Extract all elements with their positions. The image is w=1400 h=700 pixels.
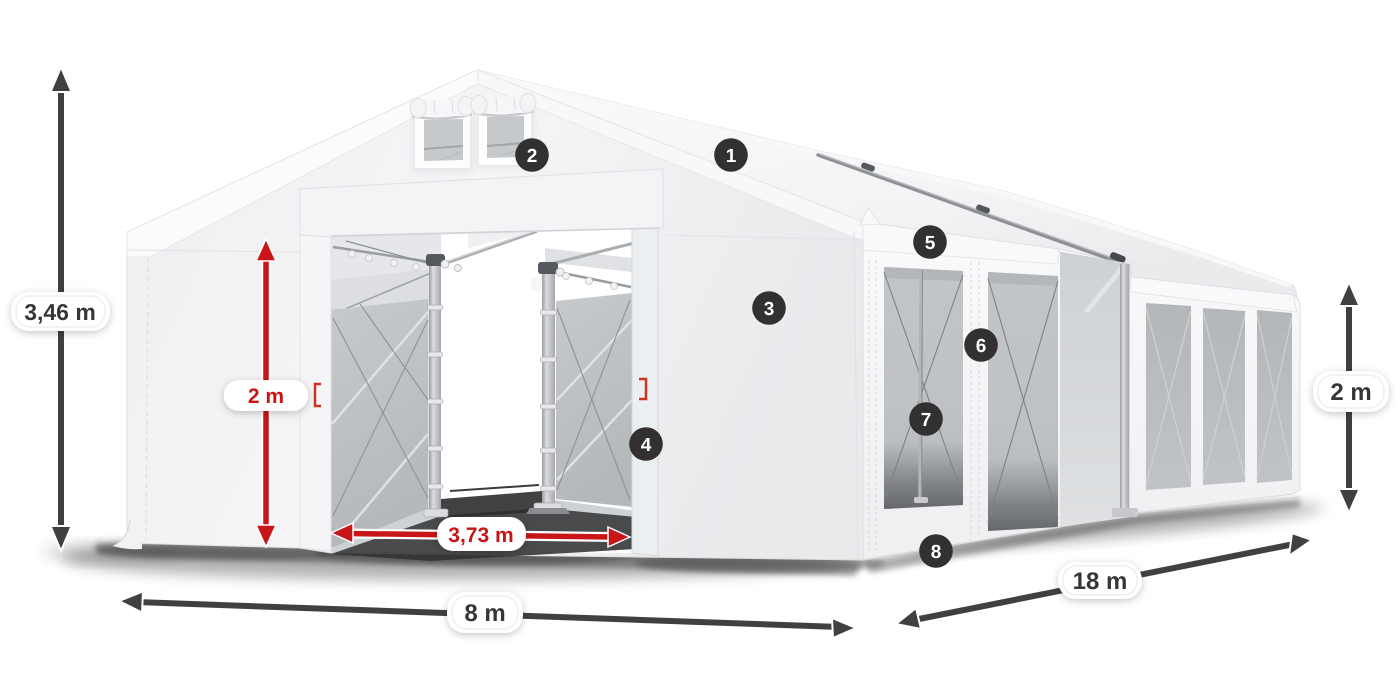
- svg-text:1: 1: [726, 146, 737, 167]
- svg-text:8: 8: [931, 542, 942, 563]
- svg-text:7: 7: [921, 410, 932, 431]
- svg-text:3: 3: [764, 299, 775, 320]
- svg-text:5: 5: [925, 233, 936, 254]
- svg-text:2 m: 2 m: [1330, 379, 1371, 406]
- svg-text:6: 6: [976, 336, 987, 357]
- svg-text:2: 2: [527, 146, 538, 167]
- svg-text:2 m: 2 m: [248, 385, 284, 408]
- svg-text:4: 4: [641, 435, 652, 456]
- svg-text:18 m: 18 m: [1073, 568, 1128, 595]
- svg-text:8 m: 8 m: [464, 600, 505, 627]
- svg-text:3,73 m: 3,73 m: [448, 524, 513, 547]
- svg-text:3,46 m: 3,46 m: [24, 299, 96, 325]
